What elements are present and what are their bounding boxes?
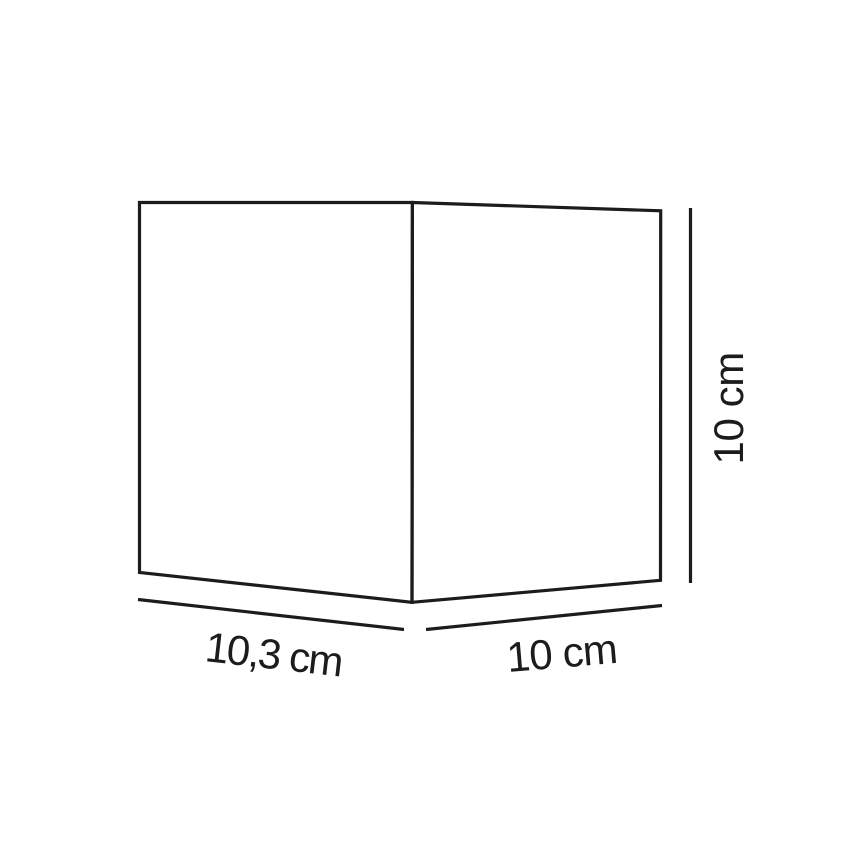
svg-text:10,3 cm: 10,3 cm: [203, 623, 344, 685]
svg-text:10 cm: 10 cm: [705, 352, 752, 464]
svg-text:10 cm: 10 cm: [505, 625, 619, 681]
